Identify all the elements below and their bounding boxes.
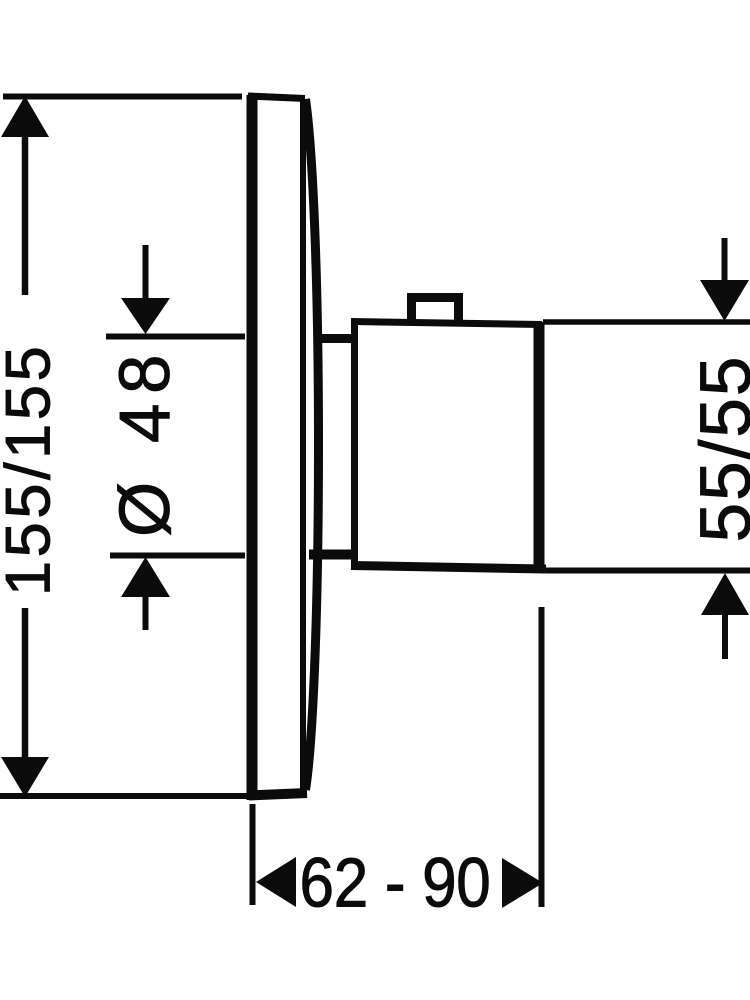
svg-text:155/155: 155/155 xyxy=(0,343,64,596)
svg-text:55/55: 55/55 xyxy=(687,355,750,543)
svg-text:Ø 48: Ø 48 xyxy=(106,345,185,537)
svg-text:62 - 90: 62 - 90 xyxy=(300,843,491,921)
